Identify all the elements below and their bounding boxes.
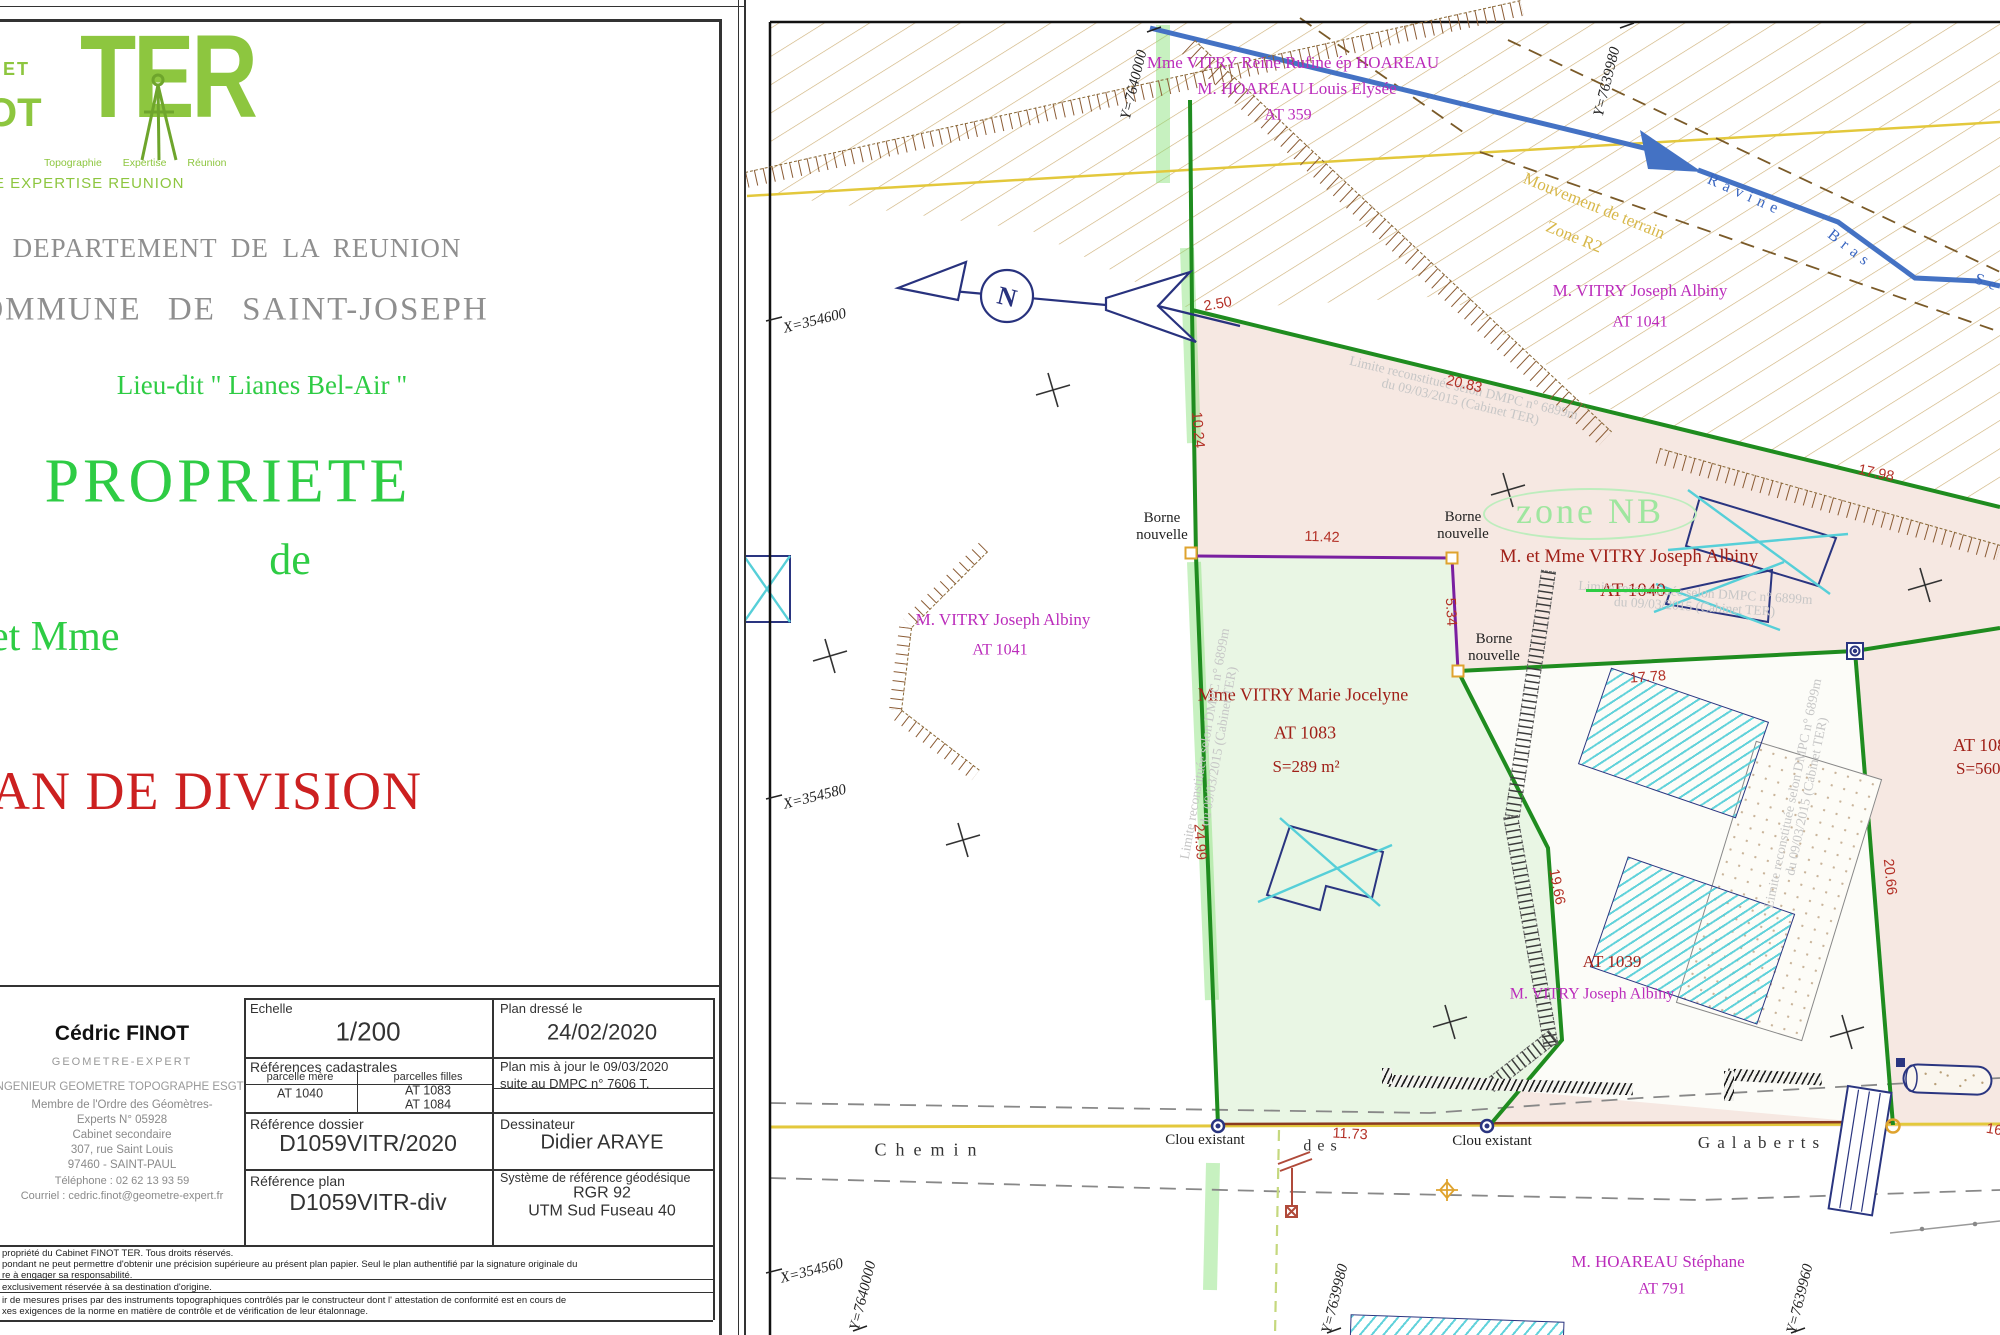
clou-existant-label: Clou existant [1165, 1133, 1245, 1149]
logo-partial-text: OT [0, 92, 42, 134]
parcelles-filles-label: parcelles filles [393, 1072, 462, 1084]
sheet-border [738, 0, 739, 1335]
parcelle-fille-value: AT 1084 [405, 1098, 451, 1111]
dim-10-24: 10.24 [1188, 411, 1206, 448]
title-block-sheet: ET OT TER Topographie Expertise Réunion … [0, 0, 746, 1335]
ref-plan-value: D1059VITR-div [289, 1190, 446, 1214]
echelle-label: Echelle [250, 1002, 293, 1016]
owner-label: M. HOAREAU Stéphane [1571, 1253, 1744, 1271]
zone-nb-label: zone NB [1516, 493, 1664, 531]
clou-existant-label: Clou existant [1452, 1134, 1532, 1150]
plan-dresse-value: 24/02/2020 [547, 1020, 657, 1043]
dim-24-99: 24.99 [1190, 823, 1208, 860]
fine-print-divider [0, 1292, 713, 1293]
table-subdivider [357, 1070, 358, 1112]
section-divider [0, 985, 722, 987]
signpost-symbol [1278, 1152, 1312, 1217]
parcel-area: S=289 m² [1272, 758, 1339, 776]
owners-line: et Mme [0, 615, 119, 659]
table-subdivider [492, 1088, 713, 1089]
parcelle-fille-value: AT 1083 [405, 1084, 451, 1097]
owner-label: M. VITRY Joseph Albiny [1553, 282, 1728, 300]
parcel-id: AT 1041 [972, 643, 1027, 660]
parcel-id: AT 359 [1264, 108, 1311, 125]
fine-print-divider [0, 1320, 713, 1322]
parcel-area: S=560 m² [1956, 760, 2000, 778]
star-marker [1436, 1179, 1458, 1201]
plan-dresse-label: Plan dressé le [500, 1002, 582, 1016]
parcel-id: AT 1083 [1274, 724, 1336, 743]
surveyor-line: Téléphone : 02 62 13 93 59 [55, 1176, 190, 1188]
owner-label: M. HOAREAU Louis Elysée [1197, 80, 1396, 98]
borne-nouvelle-label: nouvelle [1468, 649, 1520, 665]
parcel-id: AT 1084 [1953, 736, 2000, 755]
ref-plan-label: Référence plan [250, 1174, 345, 1189]
propriete-title: PROPRIETE [45, 449, 412, 514]
table-border [244, 1169, 713, 1171]
surveyor-line: INGENIEUR GEOMETRE TOPOGRAPHE ESGT [0, 1081, 244, 1093]
ref-dossier-value: D1059VITR/2020 [279, 1131, 457, 1155]
logo-partial-text: ET [3, 60, 30, 79]
borne-nouvelle-label: nouvelle [1437, 527, 1489, 543]
sheet-border [0, 19, 722, 22]
sheet-border [719, 19, 722, 1335]
sheet-border [0, 6, 746, 7]
logo-subline: E EXPERTISE REUNION [0, 176, 184, 192]
table-subdivider [244, 1084, 492, 1085]
table-border [0, 1245, 713, 1247]
maj-line: Plan mis à jour le 09/03/2020 [500, 1060, 668, 1074]
dim-20-66: 20.66 [1880, 858, 1899, 896]
surveyor-line: Experts N° 05928 [77, 1114, 167, 1126]
table-border [244, 1112, 713, 1114]
parcelle-mere-label: parcelle mère [267, 1072, 334, 1084]
parcel-limit-dashed-green [1275, 1130, 1279, 1335]
geodesie-value: UTM Sud Fuseau 40 [528, 1204, 676, 1221]
owner-label: M. VITRY Joseph Albiny [916, 611, 1091, 629]
table-border [713, 998, 715, 1320]
road-name: Chemin [875, 1141, 986, 1160]
owner-label: Mme VITRY Reine Rufine ép HOAREAU [1147, 54, 1439, 72]
surveyor-line: 97460 - SAINT-PAUL [68, 1159, 176, 1171]
sheet-border [744, 0, 746, 1335]
tripod-icon [130, 72, 186, 164]
fine-print-line: ir de mesures prises par des instruments… [2, 1296, 566, 1306]
surveyor-line: Cabinet secondaire [72, 1129, 171, 1141]
borne-nouvelle-label: Borne [1476, 632, 1513, 648]
at1040-strike-line [1586, 589, 1680, 592]
department-title: DEPARTEMENT DE LA REUNION [13, 234, 462, 262]
table-border [492, 998, 494, 1245]
dim-edge-clipped: 16 [1985, 1122, 2000, 1140]
fine-print-line: xes exigences de la norme en matière de … [2, 1307, 368, 1317]
parcel-id: AT 791 [1638, 1282, 1685, 1299]
road-name: Galaberts [1698, 1134, 1826, 1152]
dim-5-34: 5.34 [1442, 598, 1459, 627]
parcel-id: AT 1039 [1583, 953, 1642, 971]
parcelle-mere-value: AT 1040 [277, 1087, 323, 1100]
surveyor-line: Membre de l'Ordre des Géomètres- [31, 1099, 212, 1111]
pipe-symbol [1903, 1064, 1992, 1095]
borne-nouvelle-label: nouvelle [1136, 528, 1188, 544]
echelle-value: 1/200 [335, 1018, 400, 1045]
fine-print-line: propriété du Cabinet FINOT TER. Tous dro… [2, 1249, 233, 1259]
retaining-wall [1724, 1071, 1734, 1101]
commune-title: COMMUNE DE SAINT-JOSEPH [0, 293, 489, 328]
retaining-wall [1382, 1068, 1392, 1084]
borne-nouvelle-label: Borne [1144, 511, 1181, 527]
parcel-id: AT 1041 [1612, 315, 1667, 332]
borne-filled-square [1896, 1058, 1905, 1067]
owner-label: M. VITRY Joseph Albiny [1510, 987, 1674, 1004]
surveyor-line: Courriel : cedric.finot@geometre-expert.… [21, 1191, 224, 1203]
dim-17-78: 17.78 [1629, 669, 1666, 687]
surveyor-title: GEOMETRE-EXPERT [52, 1057, 192, 1069]
plan-de-division-sheet: N X=354600 X=354580 X=354560 Y=7640000 Y… [0, 0, 2000, 1335]
fine-print-line: pondant ne peut permettre d'obtenir une … [2, 1260, 577, 1270]
dessinateur-label: Dessinateur [500, 1117, 575, 1132]
surveyor-name: Cédric FINOT [55, 1023, 189, 1045]
fine-print-divider [0, 1279, 713, 1280]
geodesie-label: Système de référence géodésique [500, 1172, 690, 1185]
bottom-survey-line [1890, 1221, 2000, 1233]
surveyor-line: 307, rue Saint Louis [71, 1144, 173, 1156]
lieu-dit-title: Lieu-dit " Lianes Bel-Air " [117, 371, 407, 399]
dim-11-73: 11.73 [1332, 1126, 1368, 1143]
table-border [244, 1057, 713, 1059]
plan-title: PLAN DE DIVISION [0, 763, 422, 820]
dim-11-42: 11.42 [1304, 530, 1340, 546]
propriete-de: de [269, 537, 311, 583]
table-border [244, 998, 246, 1245]
table-border [244, 998, 713, 1000]
owner-label: M. et Mme VITRY Joseph Albiny [1500, 547, 1759, 567]
borne-nouvelle-label: Borne [1445, 510, 1482, 526]
geodesie-value: RGR 92 [573, 1186, 631, 1203]
dessinateur-value: Didier ARAYE [540, 1133, 663, 1154]
